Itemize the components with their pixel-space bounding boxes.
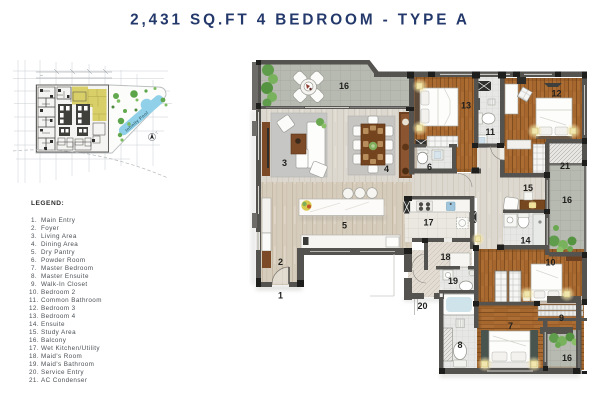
svg-text:20: 20 [418, 301, 428, 311]
svg-text:1: 1 [278, 291, 283, 301]
svg-text:Powder Room: Powder Room [41, 257, 86, 264]
svg-text:Master Bedroom: Master Bedroom [41, 265, 93, 272]
svg-text:20.: 20. [29, 369, 39, 376]
svg-text:Bedroom 3: Bedroom 3 [41, 305, 76, 312]
svg-text:9: 9 [559, 313, 564, 323]
svg-text:19: 19 [448, 276, 458, 286]
svg-text:4.: 4. [31, 241, 37, 248]
svg-text:Maid's Bathroom: Maid's Bathroom [41, 361, 94, 368]
svg-text:Living Area: Living Area [41, 233, 77, 240]
svg-text:16: 16 [562, 195, 572, 205]
svg-text:21.: 21. [29, 377, 39, 384]
svg-text:Master Ensuite: Master Ensuite [41, 273, 89, 280]
svg-text:18.: 18. [29, 353, 39, 360]
svg-text:13: 13 [461, 101, 471, 111]
svg-text:6: 6 [427, 162, 432, 172]
svg-text:Foyer: Foyer [41, 225, 59, 232]
svg-text:Common Bathroom: Common Bathroom [41, 297, 102, 304]
svg-text:19.: 19. [29, 361, 39, 368]
svg-text:16: 16 [562, 353, 572, 363]
svg-text:Study Area: Study Area [41, 329, 76, 336]
svg-text:Bedroom 2: Bedroom 2 [41, 289, 76, 296]
svg-text:Bedroom 4: Bedroom 4 [41, 313, 76, 320]
svg-text:7.: 7. [31, 265, 37, 272]
svg-text:7: 7 [508, 321, 513, 331]
svg-text:15: 15 [523, 183, 533, 193]
svg-text:18: 18 [441, 252, 451, 262]
svg-text:11: 11 [486, 127, 496, 137]
svg-text:Service Entry: Service Entry [41, 369, 84, 376]
svg-text:AC Condenser: AC Condenser [41, 377, 87, 384]
svg-text:10: 10 [546, 258, 556, 268]
svg-text:8: 8 [458, 340, 463, 350]
svg-text:16.: 16. [29, 337, 39, 344]
svg-text:4: 4 [384, 164, 389, 174]
svg-text:2,431 SQ.FT 4 BEDROOM - TYPE A: 2,431 SQ.FT 4 BEDROOM - TYPE A [130, 12, 470, 29]
svg-text:Main Entry: Main Entry [41, 217, 76, 224]
svg-text:10.: 10. [29, 289, 39, 296]
svg-text:14.: 14. [29, 321, 39, 328]
svg-text:Walk-In Closet: Walk-In Closet [41, 281, 88, 288]
svg-text:5.: 5. [31, 249, 37, 256]
svg-text:17.: 17. [29, 345, 39, 352]
svg-text:15.: 15. [29, 329, 39, 336]
svg-text:Maid's Room: Maid's Room [41, 353, 82, 360]
svg-text:12: 12 [552, 89, 562, 99]
svg-text:6.: 6. [31, 257, 37, 264]
svg-text:Ensuite: Ensuite [41, 321, 65, 328]
svg-text:3: 3 [282, 158, 287, 168]
svg-text:2: 2 [278, 257, 283, 267]
svg-text:Dry Pantry: Dry Pantry [41, 249, 75, 256]
svg-text:13.: 13. [29, 313, 39, 320]
svg-text:8.: 8. [31, 273, 37, 280]
svg-text:2.: 2. [31, 225, 37, 232]
svg-text:Balcony: Balcony [41, 337, 67, 344]
svg-text:LEGEND:: LEGEND: [31, 200, 64, 207]
svg-text:21: 21 [560, 161, 570, 171]
svg-text:1.: 1. [31, 217, 37, 224]
svg-text:5: 5 [342, 221, 347, 231]
svg-text:Dining Area: Dining Area [41, 241, 78, 248]
svg-text:14: 14 [521, 236, 531, 246]
svg-text:9.: 9. [31, 281, 37, 288]
svg-text:17: 17 [424, 218, 434, 228]
svg-text:3.: 3. [31, 233, 37, 240]
svg-text:16: 16 [339, 81, 349, 91]
svg-text:Wet Kitchen/Utility: Wet Kitchen/Utility [41, 345, 100, 352]
svg-text:12.: 12. [29, 305, 39, 312]
svg-text:11.: 11. [29, 297, 39, 304]
